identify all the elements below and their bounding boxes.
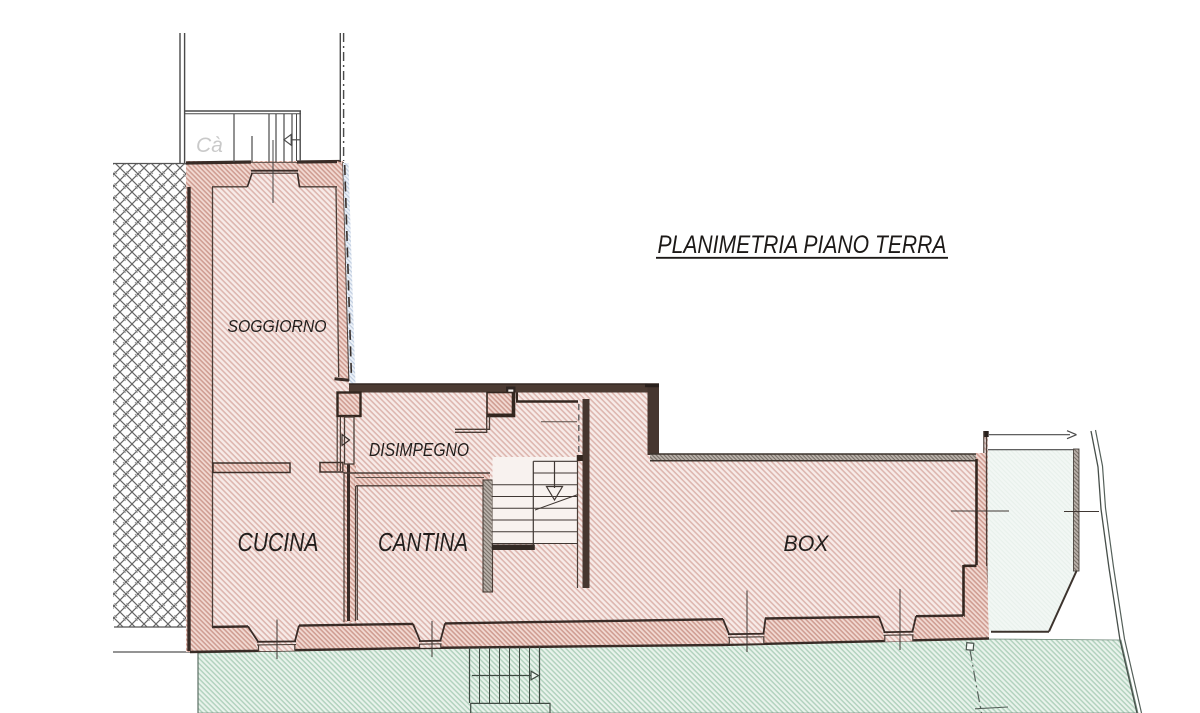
svg-text:PLANIMETRIA PIANO TERRA: PLANIMETRIA PIANO TERRA: [658, 231, 947, 259]
svg-text:SOGGIORNO: SOGGIORNO: [228, 316, 327, 336]
svg-text:CUCINA: CUCINA: [238, 527, 319, 557]
svg-text:CANTINA: CANTINA: [378, 527, 468, 557]
svg-text:DISIMPEGNO: DISIMPEGNO: [369, 439, 469, 460]
svg-text:BOX: BOX: [784, 531, 830, 556]
svg-text:Cà: Cà: [196, 134, 223, 157]
